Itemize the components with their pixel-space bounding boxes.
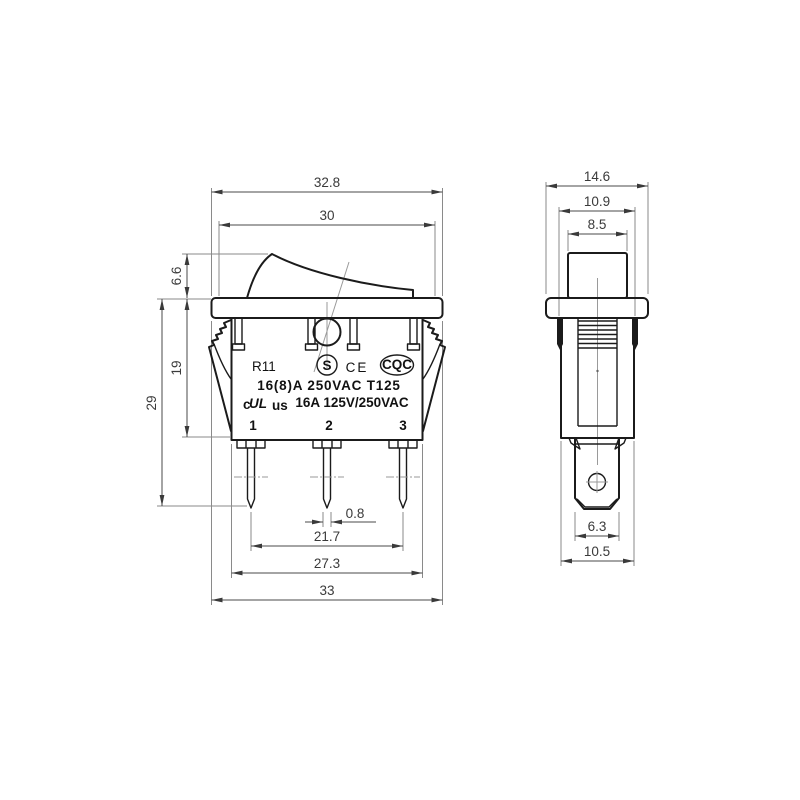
technical-drawing-page: 32.8 30 6.6 19 29 0.8 21.7 27.3	[0, 0, 800, 800]
dim-width-top: 32.8	[212, 175, 443, 192]
dim-total-depth: 29	[144, 299, 162, 506]
dim-label-6-3: 6.3	[588, 519, 607, 534]
dim-rocker-height: 6.6	[169, 254, 187, 298]
terminal-number-2: 2	[325, 418, 333, 433]
rocker-switch-drawing: 32.8 30 6.6 19 29 0.8 21.7 27.3	[0, 0, 800, 800]
ul-letters: UL	[249, 396, 267, 411]
dim-flange-width: 14.6	[546, 169, 648, 186]
s-mark-letter: S	[322, 358, 331, 373]
post	[233, 318, 245, 350]
dim-clip-width: 10.9	[559, 194, 635, 211]
s-mark-icon: S	[317, 355, 337, 375]
dim-terminal-width: 6.3	[575, 519, 619, 536]
dim-label-27-3: 27.3	[314, 556, 340, 571]
wing-bar-right	[632, 318, 638, 350]
dim-body-width: 27.3	[232, 556, 423, 573]
terminal-number-3: 3	[399, 418, 407, 433]
body-markings: R11 S CE CQC 16(8)A 250VAC T125 c UL us …	[243, 355, 414, 433]
post	[348, 318, 360, 350]
mounting-wing-left	[209, 320, 231, 431]
terminal-pin-2	[310, 440, 344, 508]
model-label: R11	[252, 359, 276, 374]
cqc-mark-letters: CQC	[382, 357, 412, 372]
wing-bar-left	[557, 318, 563, 350]
dim-label-33: 33	[319, 583, 334, 598]
dim-label-14-6: 14.6	[584, 169, 610, 184]
mounting-wing-right	[423, 320, 445, 431]
rocker-actuator	[247, 254, 413, 298]
window-center-dot	[596, 370, 598, 372]
dim-label-10-9: 10.9	[584, 194, 610, 209]
dim-body-depth: 19	[169, 299, 187, 437]
dim-rocker-depth: 8.5	[568, 217, 627, 234]
rating-line-2: 16A 125V/250VAC	[295, 395, 409, 410]
post	[306, 318, 318, 350]
dim-label-21-7: 21.7	[314, 529, 340, 544]
terminal-number-1: 1	[249, 418, 257, 433]
side-view: 14.6 10.9 8.5 6.3 10.5	[546, 169, 648, 566]
front-view: 32.8 30 6.6 19 29 0.8 21.7 27.3	[144, 175, 445, 605]
terminal-pin-3	[386, 440, 420, 508]
dim-pin-thickness: 0.8	[305, 506, 376, 522]
dim-label-8-5: 8.5	[588, 217, 607, 232]
dim-overall-width: 33	[212, 583, 443, 600]
dim-label-29: 29	[144, 395, 159, 410]
ul-mark-icon: c UL us	[243, 396, 288, 413]
ul-suffix: us	[272, 398, 288, 413]
rating-line-1: 16(8)A 250VAC T125	[257, 378, 400, 393]
dim-label-32-8: 32.8	[314, 175, 340, 190]
dim-label-19: 19	[169, 360, 184, 375]
dim-label-6-6: 6.6	[169, 267, 184, 286]
cqc-mark-icon: CQC	[381, 355, 414, 375]
dim-label-10-5: 10.5	[584, 544, 610, 559]
dim-label-30: 30	[319, 208, 334, 223]
terminal-pin-1	[234, 440, 268, 508]
dim-body-width-side: 10.5	[561, 544, 634, 561]
dim-pin-span: 21.7	[251, 529, 403, 546]
ce-mark-icon: CE	[346, 360, 369, 375]
post	[408, 318, 420, 350]
dim-rocker-width: 30	[219, 208, 435, 225]
dim-label-0-8: 0.8	[346, 506, 365, 521]
